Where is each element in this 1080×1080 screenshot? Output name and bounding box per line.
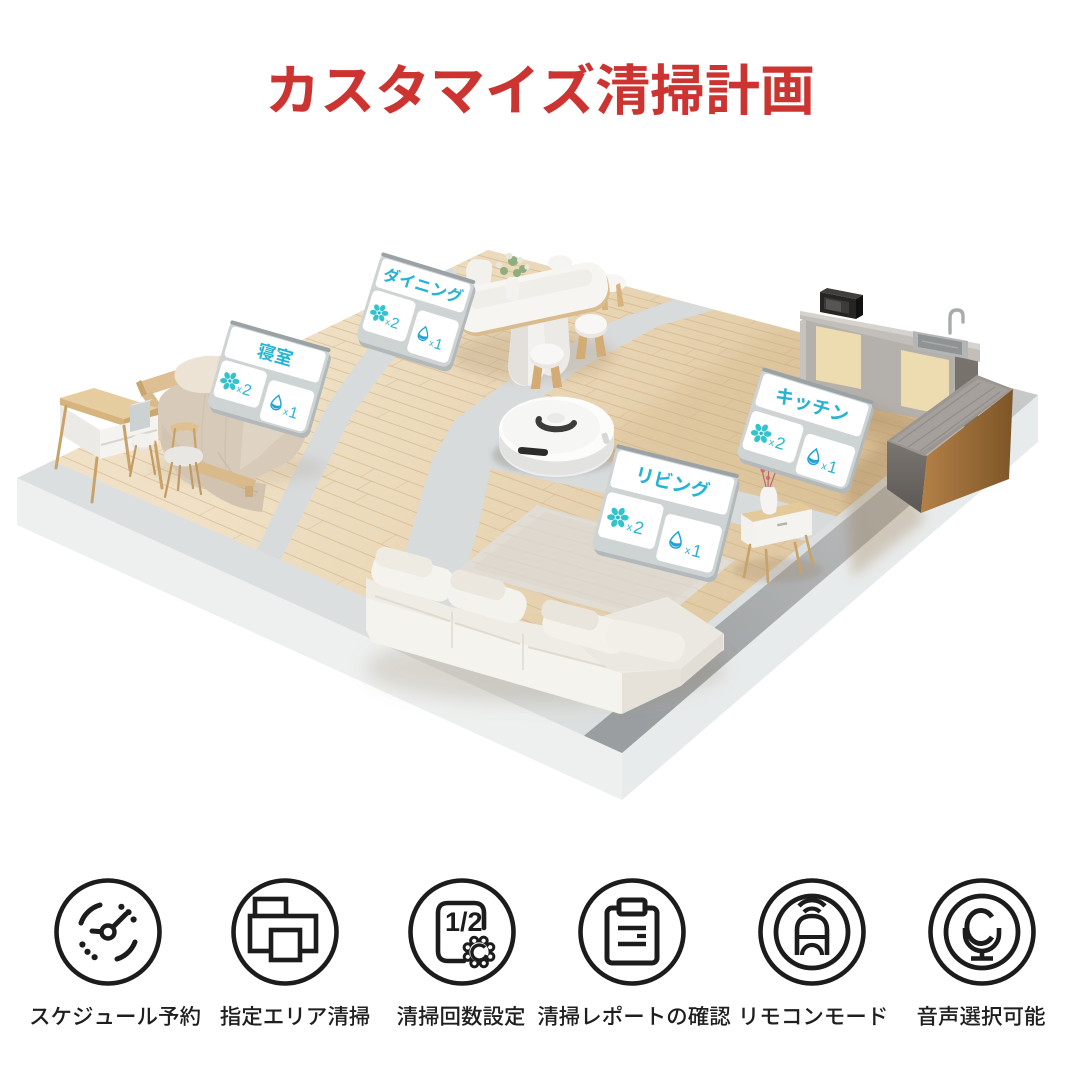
svg-text:1/2: 1/2	[445, 907, 483, 937]
